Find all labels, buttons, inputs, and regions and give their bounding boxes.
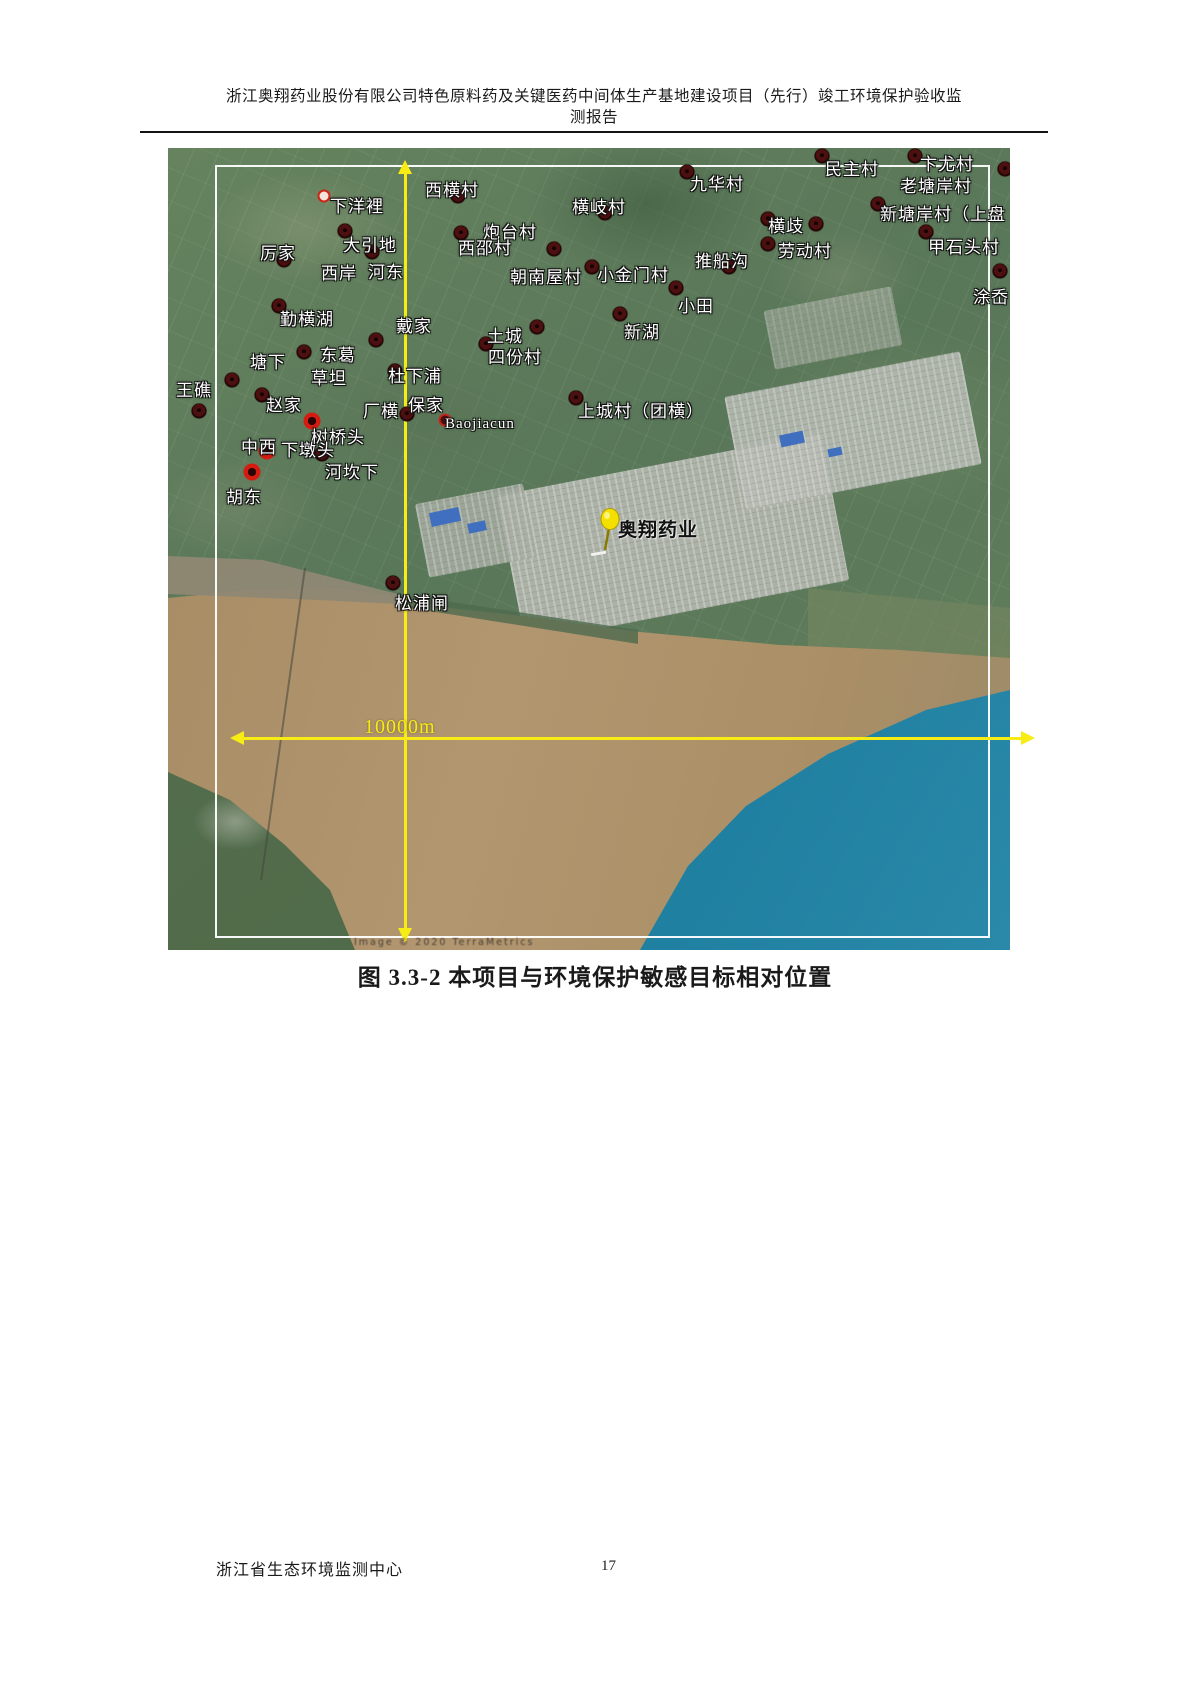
project-site-label: 奥翔药业 xyxy=(618,515,698,542)
village-label: 横歧 xyxy=(768,212,804,237)
village-label: 王礁 xyxy=(176,376,212,401)
village-label: 河东 xyxy=(368,258,404,283)
village-label: 推船沟 xyxy=(695,247,749,272)
header-line-2: 测报告 xyxy=(140,107,1048,128)
village-label: 草坦 xyxy=(311,364,347,389)
village-label: 保家 xyxy=(408,391,444,416)
page-header: 浙江奥翔药业股份有限公司特色原料药及关键医药中间体生产基地建设项目（先行）竣工环… xyxy=(140,86,1048,128)
village-label: 民主村 xyxy=(825,155,879,180)
village-label: 赵家 xyxy=(266,391,302,416)
village-label: 九华村 xyxy=(690,170,744,195)
page-number: 17 xyxy=(601,1558,616,1575)
footer-organization: 浙江省生态环境监测中心 xyxy=(216,1556,403,1580)
village-label: 戴家 xyxy=(396,312,432,337)
village-label: 厂横 xyxy=(363,397,399,422)
village-label: Baojiacun xyxy=(445,416,515,433)
village-label: 小田 xyxy=(678,292,714,317)
header-line-1: 浙江奥翔药业股份有限公司特色原料药及关键医药中间体生产基地建设项目（先行）竣工环… xyxy=(140,86,1048,107)
map-labels: 下洋裡西横村厉家大引地西岸河东炮台村西邵村横岐村九华村民主村卞尤村老塘岸村新塘岸… xyxy=(168,148,1010,950)
village-label: 上城村（团横） xyxy=(578,397,704,422)
village-label: 下洋裡 xyxy=(330,192,384,217)
village-label: 新塘岸村（上盘 xyxy=(880,200,1006,225)
project-pushpin-icon xyxy=(596,508,622,552)
satellite-map-figure: 下洋裡西横村厉家大引地西岸河东炮台村西邵村横岐村九华村民主村卞尤村老塘岸村新塘岸… xyxy=(168,148,1010,950)
arrow-right-icon xyxy=(1021,731,1035,745)
header-rule xyxy=(140,131,1048,133)
village-label: 西邵村 xyxy=(458,234,512,259)
village-label: 杜下浦 xyxy=(388,362,442,387)
village-label: 东葛 xyxy=(320,341,356,366)
village-label: 西岸 xyxy=(321,259,357,284)
village-label: 厉家 xyxy=(260,239,296,264)
village-label: 老塘岸村 xyxy=(900,172,972,197)
village-label: 松浦闸 xyxy=(395,589,449,614)
village-label: 新湖 xyxy=(624,318,660,343)
village-label: 大引地 xyxy=(343,231,397,256)
village-label: 西横村 xyxy=(425,176,479,201)
village-label: 小金门村 xyxy=(597,261,669,286)
village-label: 朝南屋村 xyxy=(510,263,582,288)
village-label: 勤横湖 xyxy=(280,305,334,330)
village-label: 胡东 xyxy=(226,483,262,508)
village-label: 河坎下 xyxy=(325,458,379,483)
village-label: 涂岙 xyxy=(973,283,1009,308)
village-label: 甲石头村 xyxy=(928,233,1000,258)
village-label: 四份村 xyxy=(488,343,542,368)
imagery-attribution: Image © 2020 TerraMetrics xyxy=(354,937,534,948)
report-page: 浙江奥翔药业股份有限公司特色原料药及关键医药中间体生产基地建设项目（先行）竣工环… xyxy=(0,0,1190,1683)
village-label: 横岐村 xyxy=(572,193,626,218)
figure-caption: 图 3.3-2 本项目与环境保护敏感目标相对位置 xyxy=(0,958,1190,992)
village-label: 塘下 xyxy=(250,348,286,373)
village-label: 中西 xyxy=(241,433,277,458)
village-label: 劳动村 xyxy=(778,237,832,262)
